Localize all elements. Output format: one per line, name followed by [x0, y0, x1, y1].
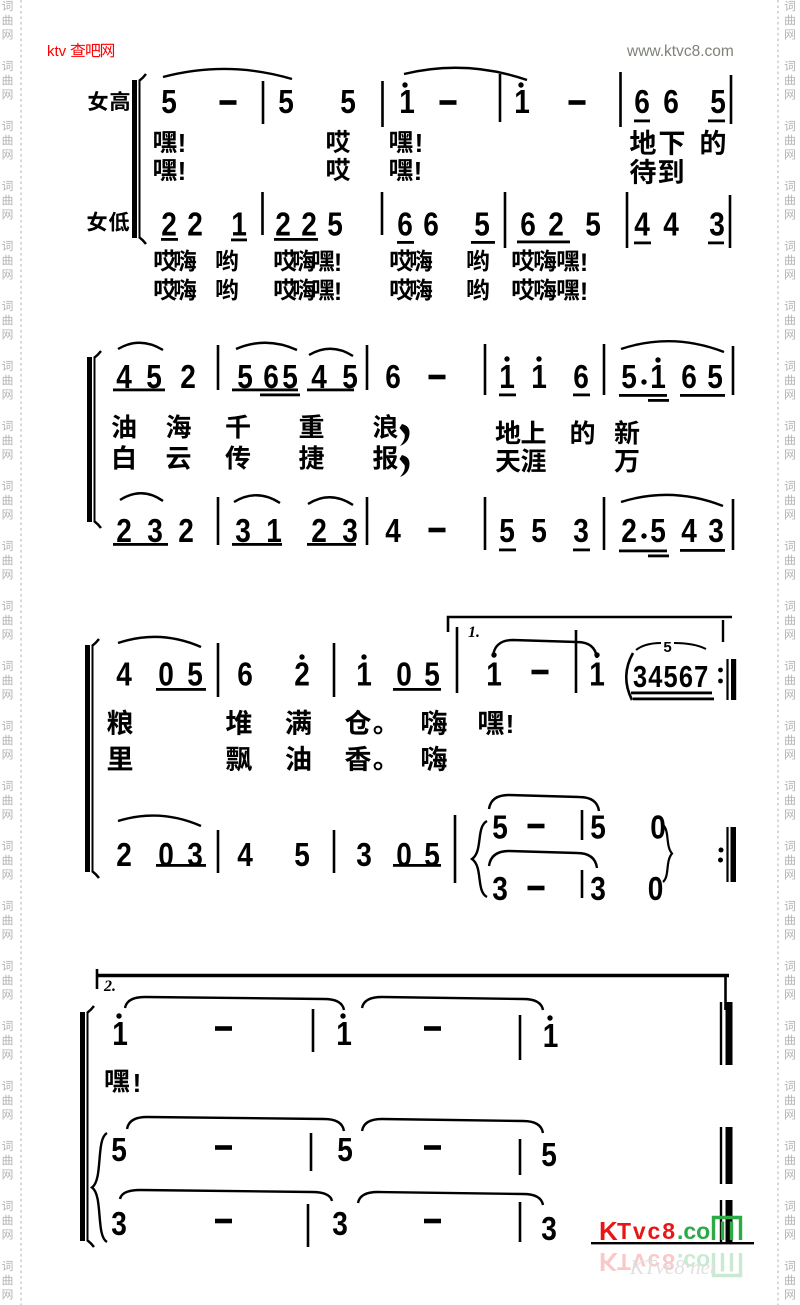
svg-text:5: 5	[707, 359, 723, 396]
svg-text:4: 4	[237, 837, 253, 874]
svg-text:1: 1	[499, 359, 515, 396]
svg-text:!: !	[414, 156, 423, 186]
svg-text:0: 0	[650, 809, 666, 846]
svg-text:4: 4	[648, 660, 662, 695]
svg-text:5: 5	[531, 513, 547, 550]
svg-text:5: 5	[499, 513, 515, 550]
svg-text:5: 5	[590, 809, 606, 846]
svg-text:www.ktvc8.com: www.ktvc8.com	[626, 43, 734, 60]
svg-text:5: 5	[650, 513, 666, 550]
svg-text:3: 3	[590, 871, 606, 908]
svg-text:6: 6	[634, 84, 650, 121]
svg-text:!: !	[506, 709, 515, 739]
svg-text:5: 5	[621, 359, 637, 396]
svg-text:5: 5	[663, 639, 671, 656]
svg-text:6: 6	[237, 656, 253, 693]
svg-text:2: 2	[161, 206, 177, 243]
svg-text:2: 2	[187, 206, 203, 243]
svg-text:1: 1	[486, 656, 502, 693]
svg-text:3: 3	[356, 837, 372, 874]
svg-text:5: 5	[294, 837, 310, 874]
svg-text:5: 5	[278, 84, 294, 121]
svg-text:5: 5	[710, 84, 726, 121]
svg-text:5: 5	[161, 84, 177, 121]
svg-text:5: 5	[424, 656, 440, 693]
svg-text:5: 5	[541, 1137, 557, 1174]
svg-text:KTvc8·net: KTvc8·net	[629, 1255, 717, 1279]
svg-text:3: 3	[492, 871, 508, 908]
svg-text:!: !	[178, 156, 187, 186]
svg-text:5: 5	[424, 837, 440, 874]
svg-text:K: K	[599, 1216, 618, 1246]
svg-text:3: 3	[332, 1206, 348, 1243]
svg-text:1: 1	[399, 84, 415, 121]
svg-text:1: 1	[336, 1016, 352, 1053]
svg-text:5: 5	[340, 84, 356, 121]
svg-text:5: 5	[492, 809, 508, 846]
svg-text:5: 5	[474, 206, 490, 243]
svg-text:2: 2	[548, 206, 564, 243]
svg-text:!: !	[334, 278, 342, 306]
svg-text:5: 5	[111, 1132, 127, 1169]
svg-text:6: 6	[679, 660, 693, 695]
svg-text:6: 6	[681, 359, 697, 396]
svg-text:3: 3	[709, 206, 725, 243]
svg-text:3: 3	[708, 513, 724, 550]
svg-text:0: 0	[158, 837, 174, 874]
svg-text:0: 0	[396, 656, 412, 693]
svg-text:!: !	[178, 128, 187, 158]
svg-text:3: 3	[573, 513, 589, 550]
svg-text:5: 5	[337, 1132, 353, 1169]
svg-text:5: 5	[187, 656, 203, 693]
svg-text:4: 4	[634, 206, 650, 243]
svg-text:5: 5	[327, 206, 343, 243]
svg-text:4: 4	[385, 513, 401, 550]
svg-text:2: 2	[180, 359, 196, 396]
svg-text:0: 0	[396, 837, 412, 874]
svg-text:6: 6	[385, 359, 401, 396]
svg-text:2: 2	[301, 206, 317, 243]
svg-text:3: 3	[541, 1211, 557, 1248]
svg-text:3: 3	[633, 660, 647, 695]
svg-text:2.: 2.	[103, 978, 116, 995]
svg-text:ktv: ktv	[47, 43, 67, 60]
svg-text:7: 7	[694, 660, 708, 695]
svg-text:3: 3	[187, 837, 203, 874]
svg-text:1: 1	[514, 84, 530, 121]
svg-text:6: 6	[573, 359, 589, 396]
svg-text:1.: 1.	[468, 624, 480, 641]
svg-text:5: 5	[585, 206, 601, 243]
svg-text:2: 2	[275, 206, 291, 243]
svg-text:2: 2	[178, 513, 194, 550]
svg-text:2: 2	[294, 656, 310, 693]
svg-text:.co: .co	[677, 1218, 710, 1244]
svg-text:1: 1	[531, 359, 547, 396]
svg-text:1: 1	[650, 359, 666, 396]
svg-text:4: 4	[663, 206, 679, 243]
svg-text:0: 0	[158, 656, 174, 693]
svg-text:2: 2	[116, 837, 132, 874]
svg-text:1: 1	[231, 206, 247, 243]
svg-text:4: 4	[116, 656, 132, 693]
svg-text:5: 5	[664, 660, 678, 695]
svg-text:!: !	[133, 1068, 142, 1098]
svg-text:!: !	[415, 128, 424, 158]
svg-text:2: 2	[621, 513, 637, 550]
svg-text:4: 4	[681, 513, 697, 550]
svg-text:6: 6	[423, 206, 439, 243]
svg-text:6: 6	[520, 206, 536, 243]
svg-text:Tvc8: Tvc8	[617, 1218, 675, 1244]
svg-text:1: 1	[356, 656, 372, 693]
svg-text:K: K	[599, 1247, 618, 1277]
svg-text:1: 1	[112, 1016, 128, 1053]
svg-text:0: 0	[648, 871, 664, 908]
svg-text:!: !	[580, 278, 588, 306]
svg-text:3: 3	[111, 1206, 127, 1243]
svg-text:6: 6	[397, 206, 413, 243]
svg-text:!: !	[580, 249, 588, 277]
svg-text:6: 6	[663, 84, 679, 121]
svg-text:!: !	[334, 249, 342, 277]
svg-text:1: 1	[543, 1018, 559, 1055]
svg-text:1: 1	[589, 656, 605, 693]
